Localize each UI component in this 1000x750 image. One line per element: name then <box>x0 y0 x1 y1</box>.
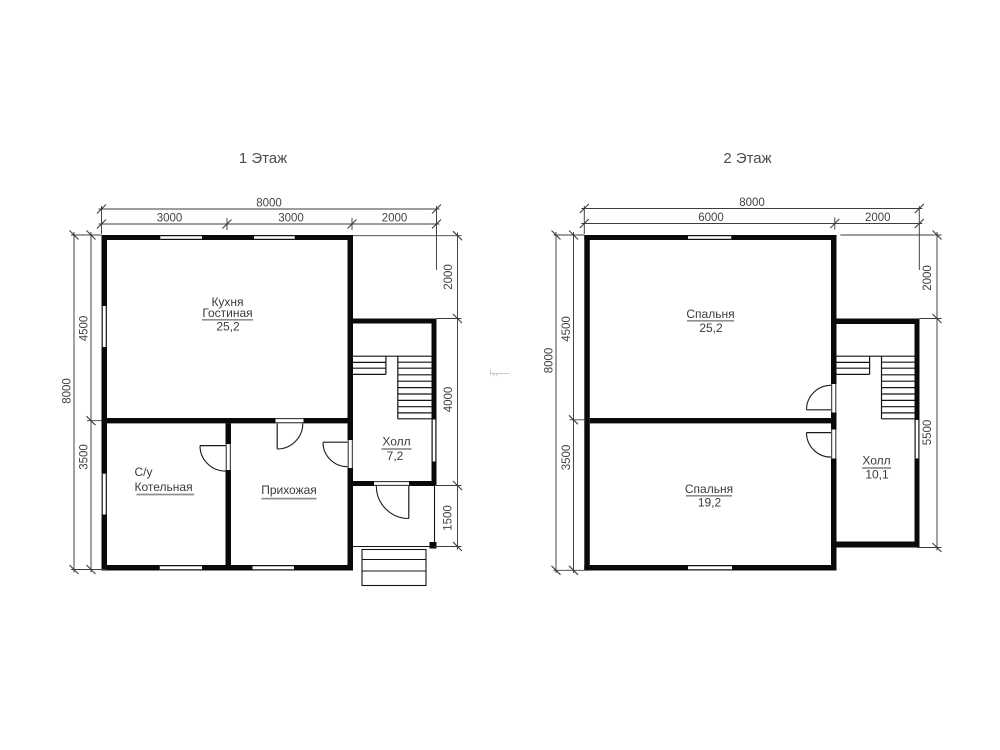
svg-text:2000: 2000 <box>865 212 891 224</box>
svg-text:1 Этаж: 1 Этаж <box>239 150 287 167</box>
svg-text:8000: 8000 <box>544 348 556 374</box>
svg-text:5500: 5500 <box>922 420 934 446</box>
svg-text:25,2: 25,2 <box>699 321 723 335</box>
svg-text:6000: 6000 <box>698 212 724 224</box>
svg-text:Холл: Холл <box>862 454 890 468</box>
svg-text:С/у: С/у <box>135 465 153 479</box>
svg-text:4000: 4000 <box>443 387 455 413</box>
svg-text:8000: 8000 <box>739 197 765 209</box>
svg-text:2000: 2000 <box>922 265 934 291</box>
svg-text:10,1: 10,1 <box>865 467 889 481</box>
svg-text:3000: 3000 <box>157 213 183 225</box>
svg-text:Гостиная: Гостиная <box>202 306 252 320</box>
svg-text:7,2: 7,2 <box>387 449 404 463</box>
svg-text:Прихожая: Прихожая <box>261 483 317 497</box>
svg-text:1500: 1500 <box>443 505 455 531</box>
svg-text:19,2: 19,2 <box>698 496 722 510</box>
svg-text:4500: 4500 <box>561 316 573 342</box>
svg-text:3500: 3500 <box>561 445 573 471</box>
svg-text:2000: 2000 <box>382 213 408 225</box>
svg-text:4500: 4500 <box>79 316 91 342</box>
svg-text:2 Этаж: 2 Этаж <box>723 150 771 167</box>
svg-text:Котельная: Котельная <box>135 480 193 494</box>
svg-text:3000: 3000 <box>278 213 304 225</box>
svg-text:Холл: Холл <box>382 435 410 449</box>
svg-text:2000: 2000 <box>443 264 455 290</box>
svg-text:Спальня: Спальня <box>685 482 733 496</box>
svg-text:25,2: 25,2 <box>216 320 240 334</box>
svg-text:8000: 8000 <box>62 378 74 404</box>
svg-text:3500: 3500 <box>79 444 91 470</box>
svg-text:Спальня: Спальня <box>686 307 734 321</box>
svg-text:8000: 8000 <box>256 198 282 210</box>
